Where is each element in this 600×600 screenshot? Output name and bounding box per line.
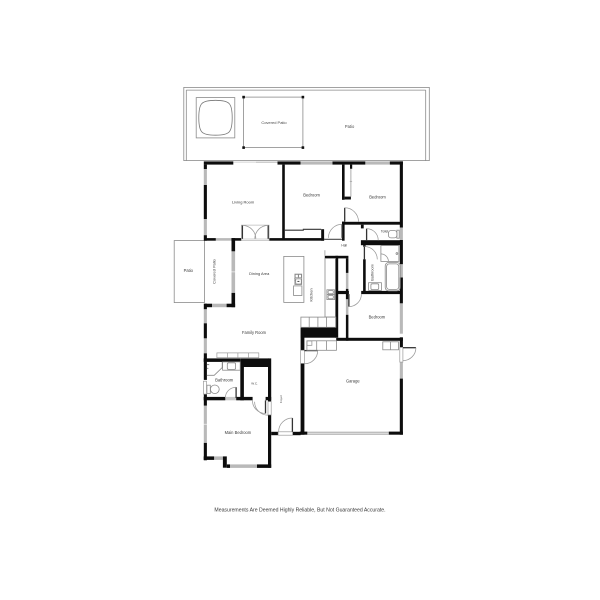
svg-text:Measurements Are Deemed Highly: Measurements Are Deemed Highly Reliable,…	[214, 508, 385, 514]
svg-text:Dining Area: Dining Area	[249, 271, 270, 276]
svg-text:Covered Patio: Covered Patio	[261, 120, 287, 125]
svg-text:Bedroom: Bedroom	[369, 195, 386, 200]
svg-text:Family Room: Family Room	[242, 330, 267, 335]
svg-text:Bedroom: Bedroom	[303, 193, 320, 198]
svg-text:Patio: Patio	[184, 268, 194, 273]
svg-text:Patio: Patio	[345, 124, 355, 129]
svg-text:Garage: Garage	[346, 379, 360, 384]
svg-text:Bathroom: Bathroom	[371, 264, 375, 280]
svg-text:Bedroom: Bedroom	[369, 314, 386, 319]
svg-text:Kitchen: Kitchen	[308, 288, 313, 301]
svg-text:Covered Patio: Covered Patio	[211, 259, 216, 284]
svg-text:Toilet: Toilet	[381, 230, 389, 234]
svg-text:Main Bedroom: Main Bedroom	[225, 430, 252, 435]
svg-text:W.C.: W.C.	[251, 382, 258, 386]
svg-text:Bathroom: Bathroom	[215, 378, 234, 383]
svg-text:Hall: Hall	[341, 244, 347, 248]
svg-text:Living Room: Living Room	[232, 200, 255, 205]
svg-text:Foyer: Foyer	[279, 395, 283, 403]
